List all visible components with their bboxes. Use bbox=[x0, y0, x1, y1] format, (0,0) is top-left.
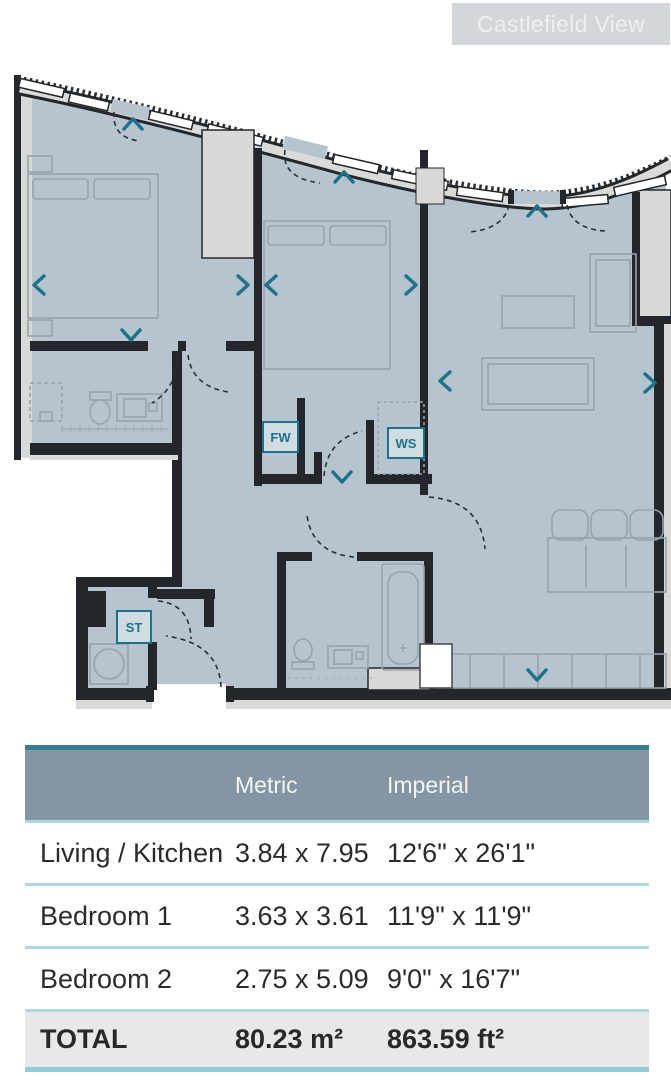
total-metric: 80.23 m² bbox=[235, 1024, 387, 1055]
room-imperial: 9'0" x 16'7" bbox=[387, 964, 649, 995]
table-total-row: TOTAL 80.23 m² 863.59 ft² bbox=[25, 1012, 649, 1067]
ws-label: WS bbox=[388, 428, 424, 458]
room-metric: 2.75 x 5.09 bbox=[235, 964, 387, 995]
svg-text:FW: FW bbox=[270, 430, 291, 445]
header-imperial: Imperial bbox=[387, 772, 649, 799]
total-imperial: 863.59 ft² bbox=[387, 1024, 649, 1055]
header-metric: Metric bbox=[235, 772, 387, 799]
room-imperial: 12'6" x 26'1" bbox=[387, 838, 649, 869]
room-name: Bedroom 1 bbox=[25, 901, 235, 932]
table-row: Living / Kitchen 3.84 x 7.95 12'6" x 26'… bbox=[25, 823, 649, 886]
table-header-row: Metric Imperial bbox=[25, 750, 649, 823]
svg-text:ST: ST bbox=[126, 620, 143, 635]
floor-area bbox=[30, 95, 666, 690]
floorplan-image: FW WS ST bbox=[0, 0, 671, 730]
table-row: Bedroom 2 2.75 x 5.09 9'0" x 16'7" bbox=[25, 949, 649, 1012]
room-name: Living / Kitchen bbox=[25, 838, 235, 869]
dimensions-table: Metric Imperial Living / Kitchen 3.84 x … bbox=[25, 745, 649, 1072]
st-label: ST bbox=[117, 611, 151, 643]
total-label: TOTAL bbox=[25, 1024, 235, 1055]
table-row: Bedroom 1 3.63 x 3.61 11'9" x 11'9" bbox=[25, 886, 649, 949]
room-imperial: 11'9" x 11'9" bbox=[387, 901, 649, 932]
svg-text:WS: WS bbox=[396, 436, 417, 451]
page: Castlefield View bbox=[0, 0, 671, 1080]
balcony-door-opening bbox=[512, 191, 562, 205]
room-name: Bedroom 2 bbox=[25, 964, 235, 995]
room-metric: 3.84 x 7.95 bbox=[235, 838, 387, 869]
fw-label: FW bbox=[263, 422, 298, 452]
room-metric: 3.63 x 3.61 bbox=[235, 901, 387, 932]
entry-door-opening bbox=[152, 684, 226, 710]
